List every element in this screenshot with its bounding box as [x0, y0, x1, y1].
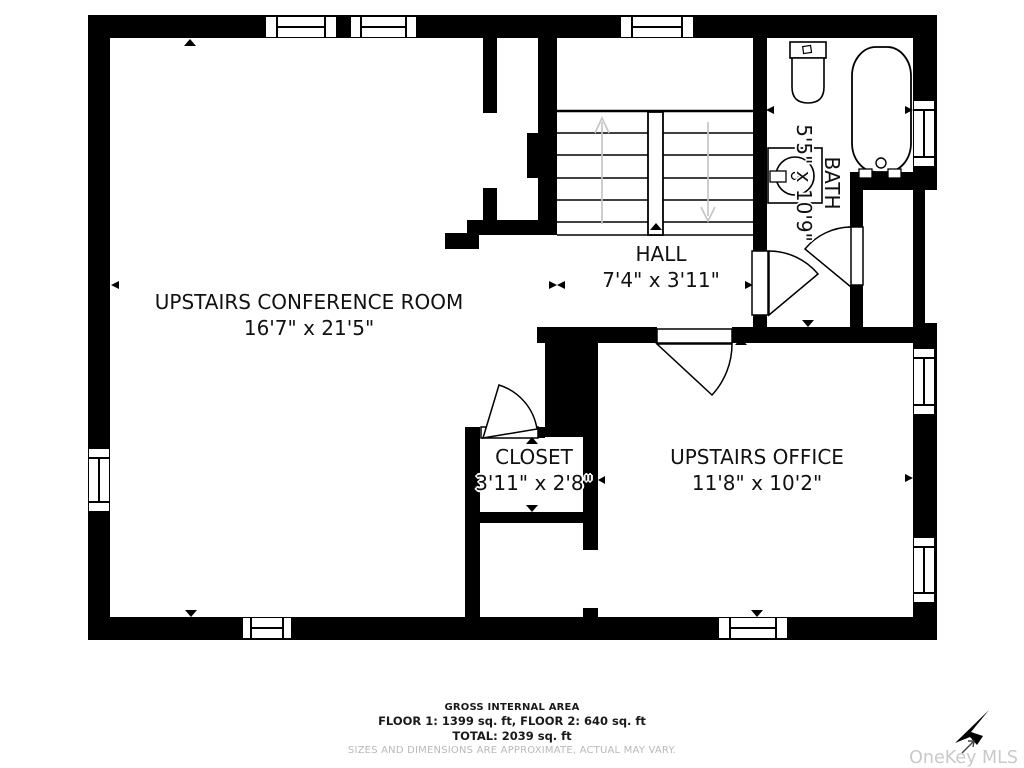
room-label-closet: CLOSET 3'11" x 2'8" — [475, 444, 593, 496]
stairs-down-arrow-icon — [701, 122, 715, 221]
area-summary-disclaimer: SIZES AND DIMENSIONS ARE APPROXIMATE, AC… — [0, 745, 1024, 756]
office-door-jamb — [657, 329, 732, 343]
office-door-swing-icon — [657, 344, 732, 395]
area-summary: GROSS INTERNAL AREA FLOOR 1: 1399 sq. ft… — [0, 702, 1024, 756]
stair-rail — [648, 112, 663, 235]
area-summary-title: GROSS INTERNAL AREA — [0, 702, 1024, 713]
staircase — [557, 111, 753, 235]
room-dimensions: 11'8" x 10'2" — [670, 470, 844, 496]
bathtub-icon — [852, 47, 911, 172]
sink-faucet — [770, 171, 786, 182]
tub-handle-right — [888, 169, 901, 178]
room-name: BATH — [818, 124, 846, 242]
room-label-office: UPSTAIRS OFFICE 11'8" x 10'2" — [670, 444, 844, 496]
room-dimensions: 5'5" x 10'9" — [790, 124, 818, 242]
bath-door-jamb — [752, 251, 768, 315]
watermark-label: OneKey MLS — [909, 748, 1018, 768]
room-dimensions: 7'4" x 3'11" — [602, 267, 720, 293]
room-name: UPSTAIRS OFFICE — [670, 444, 844, 470]
closet-door-swing-icon — [483, 385, 537, 438]
area-summary-total: TOTAL: 2039 sq. ft — [0, 729, 1024, 743]
floor-plan-canvas: UPSTAIRS CONFERENCE ROOM 16'7" x 21'5" H… — [0, 0, 1024, 768]
room-dimensions: 3'11" x 2'8" — [475, 470, 593, 496]
stairs-up-arrow-icon — [595, 118, 609, 224]
room-label-hall: HALL 7'4" x 3'11" — [602, 241, 720, 293]
room-name: UPSTAIRS CONFERENCE ROOM — [155, 289, 464, 315]
room-dimensions: 16'7" x 21'5" — [155, 315, 464, 341]
tub-handle-left — [859, 169, 872, 178]
room-name: HALL — [602, 241, 720, 267]
bath-door-swing-icon — [769, 251, 818, 315]
room-label-bath: BATH 5'5" x 10'9" — [790, 124, 846, 242]
tub-faucet — [876, 158, 886, 168]
area-summary-floors: FLOOR 1: 1399 sq. ft, FLOOR 2: 640 sq. f… — [0, 714, 1024, 728]
toilet-flush-button — [803, 45, 812, 53]
room-name: CLOSET — [475, 444, 593, 470]
toilet-bowl — [792, 58, 824, 103]
floor-plan-overlay — [0, 0, 1024, 768]
room-label-conference: UPSTAIRS CONFERENCE ROOM 16'7" x 21'5" — [155, 289, 464, 341]
